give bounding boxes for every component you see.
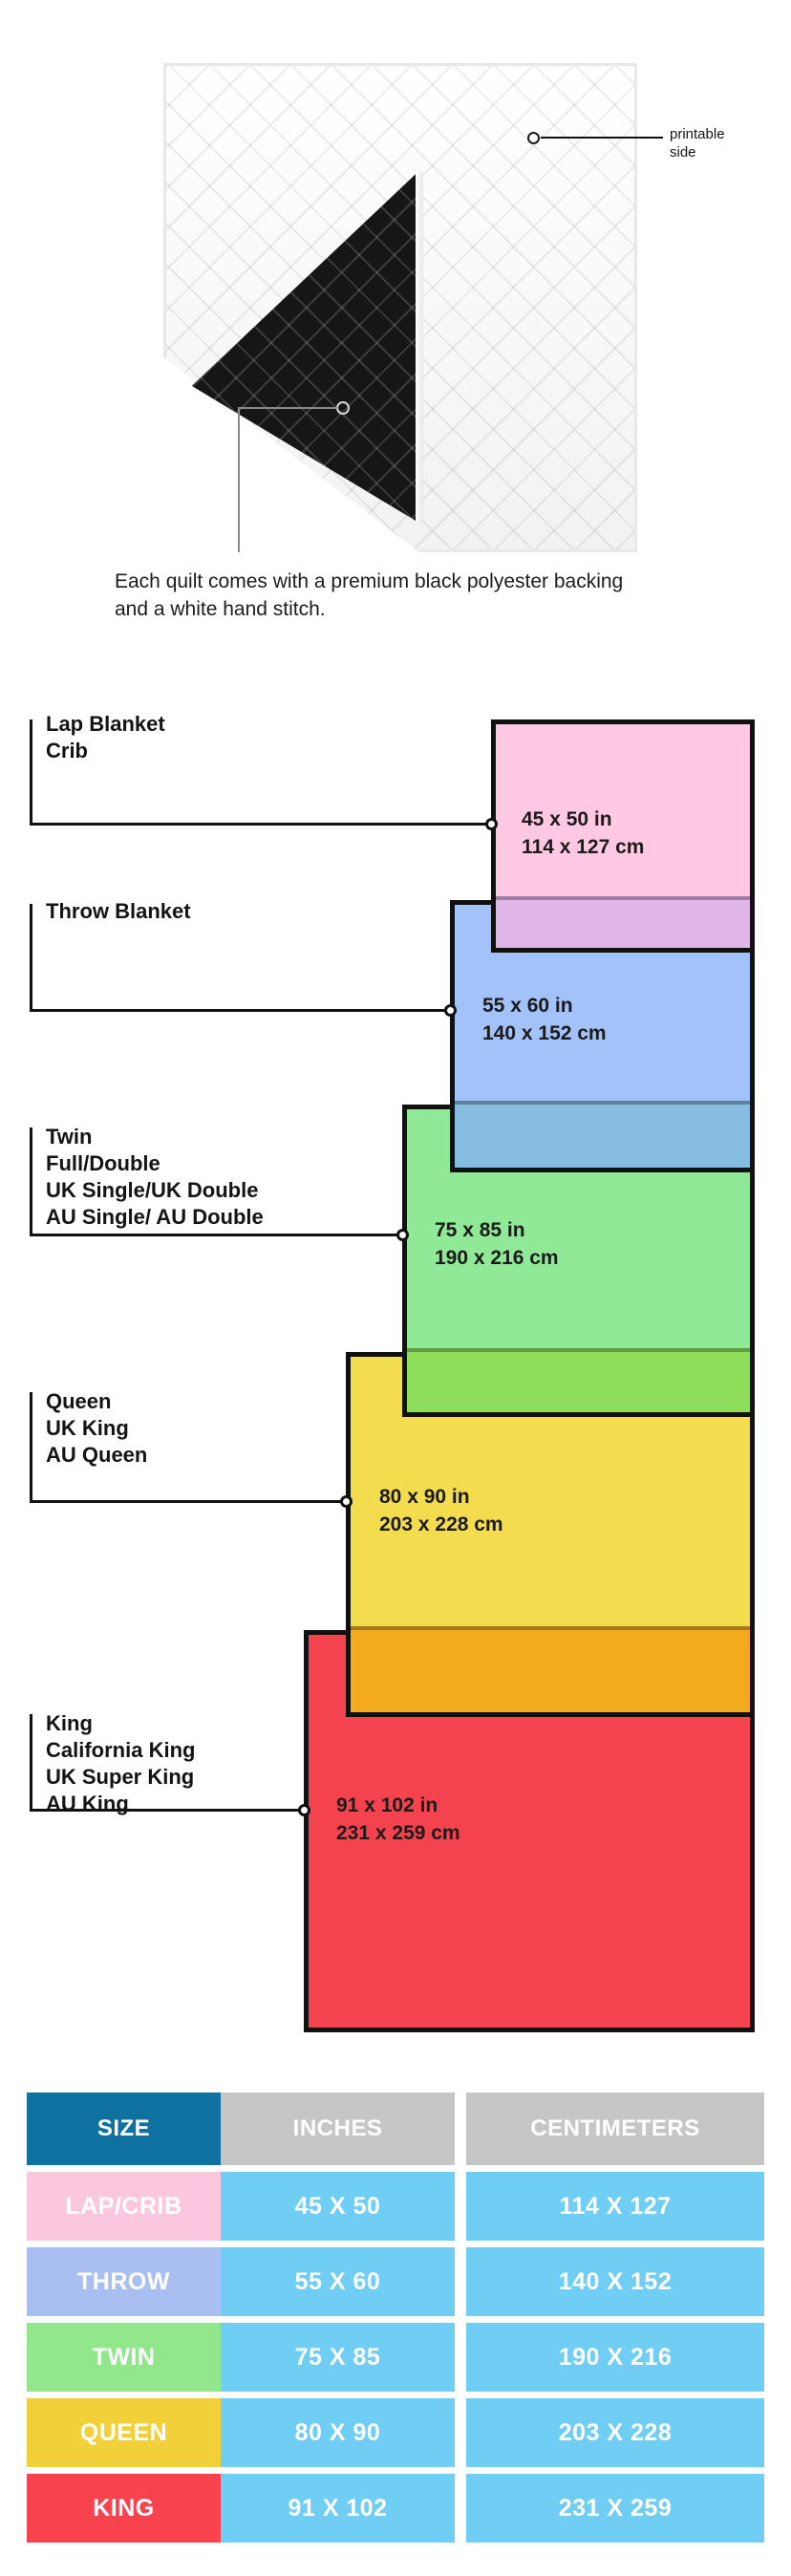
dimension-marker-icon bbox=[396, 1229, 409, 1241]
table-cell-inches: 55 X 60 bbox=[221, 2247, 455, 2316]
dimension-cm: 190 x 216 cm bbox=[435, 1244, 559, 1272]
dimension-inches: 45 x 50 in bbox=[522, 805, 644, 833]
overlap-band-queen-king bbox=[351, 1626, 750, 1712]
table-row-throw: THROW 55 X 60 140 X 152 bbox=[27, 2247, 764, 2316]
dimension-marker-icon bbox=[340, 1495, 353, 1508]
dimension-text-throw: 55 x 60 in 140 x 152 cm bbox=[482, 992, 607, 1047]
dimension-inches: 75 x 85 in bbox=[435, 1216, 559, 1244]
dimension-marker-icon bbox=[298, 1804, 310, 1816]
table-header-centimeters: CENTIMETERS bbox=[466, 2093, 764, 2165]
size-label-line: Crib bbox=[46, 738, 165, 764]
size-label-king: King California King UK Super King AU Ki… bbox=[46, 1710, 195, 1817]
table-cell-inches: 45 X 50 bbox=[221, 2172, 455, 2241]
size-label-line: Twin bbox=[46, 1124, 264, 1150]
dimension-cm: 140 x 152 cm bbox=[482, 1020, 607, 1047]
dimension-inches: 80 x 90 in bbox=[379, 1483, 503, 1511]
table-cell-label: THROW bbox=[27, 2247, 221, 2316]
size-label-line: UK Single/UK Double bbox=[46, 1177, 264, 1204]
callout-line bbox=[30, 1809, 300, 1812]
table-row-king: KING 91 X 102 231 X 259 bbox=[27, 2474, 764, 2543]
dimension-text-twin: 75 x 85 in 190 x 216 cm bbox=[435, 1216, 559, 1272]
backing-callout-line-vertical bbox=[238, 407, 240, 552]
printable-side-marker-icon bbox=[527, 132, 540, 144]
dimension-inches: 91 x 102 in bbox=[336, 1792, 460, 1819]
size-label-line: King bbox=[46, 1710, 195, 1737]
quilt-fold-crease bbox=[416, 171, 423, 524]
printable-side-callout-line bbox=[541, 137, 663, 139]
table-column-gap bbox=[455, 2172, 466, 2241]
size-label-line: UK Super King bbox=[46, 1764, 195, 1791]
size-label-throw: Throw Blanket bbox=[46, 898, 191, 925]
size-label-line: AU King bbox=[46, 1791, 195, 1817]
dimension-cm: 203 x 228 cm bbox=[379, 1511, 503, 1538]
dimension-text-lap-crib: 45 x 50 in 114 x 127 cm bbox=[522, 805, 644, 861]
overlap-band-throw-twin bbox=[455, 1101, 750, 1168]
dimension-cm: 114 x 127 cm bbox=[522, 833, 644, 861]
quilt-caption: Each quilt comes with a premium black po… bbox=[115, 568, 635, 623]
table-cell-cm: 190 X 216 bbox=[466, 2323, 764, 2392]
table-cell-label: QUEEN bbox=[27, 2398, 221, 2467]
size-label-line: AU Queen bbox=[46, 1442, 147, 1469]
dimension-text-queen: 80 x 90 in 203 x 228 cm bbox=[379, 1483, 503, 1538]
table-column-gap bbox=[455, 2247, 466, 2316]
callout-line bbox=[30, 904, 32, 1011]
size-label-line: UK King bbox=[46, 1415, 147, 1442]
callout-line bbox=[30, 1714, 32, 1812]
callout-line bbox=[30, 719, 32, 825]
table-row-lap-crib: LAP/CRIB 45 X 50 114 X 127 bbox=[27, 2172, 764, 2241]
size-label-queen: Queen UK King AU Queen bbox=[46, 1388, 147, 1469]
table-header-size: SIZE bbox=[27, 2093, 221, 2165]
dimension-marker-icon bbox=[444, 1004, 457, 1017]
table-row-queen: QUEEN 80 X 90 203 X 228 bbox=[27, 2398, 764, 2467]
callout-line bbox=[30, 1500, 342, 1503]
callout-line bbox=[30, 1234, 397, 1236]
size-label-line: California King bbox=[46, 1737, 195, 1764]
size-label-line: Lap Blanket bbox=[46, 711, 165, 738]
table-header-row: SIZE INCHES CENTIMETERS bbox=[27, 2093, 764, 2165]
dimension-cm: 231 x 259 cm bbox=[336, 1819, 460, 1847]
printable-side-label: printable side bbox=[670, 125, 746, 161]
table-column-gap bbox=[455, 2398, 466, 2467]
backing-callout-line-horizontal bbox=[238, 407, 337, 409]
callout-line bbox=[30, 823, 488, 826]
overlap-band-twin-queen bbox=[407, 1348, 750, 1412]
callout-line bbox=[30, 1392, 32, 1503]
table-cell-inches: 91 X 102 bbox=[221, 2474, 455, 2543]
dimension-text-king: 91 x 102 in 231 x 259 cm bbox=[336, 1792, 460, 1847]
table-header-inches: INCHES bbox=[221, 2093, 455, 2165]
table-cell-cm: 140 X 152 bbox=[466, 2247, 764, 2316]
size-guide-page: printable side Each quilt comes with a p… bbox=[0, 0, 791, 2576]
table-column-gap bbox=[455, 2093, 466, 2165]
spec-table: SIZE INCHES CENTIMETERS LAP/CRIB 45 X 50… bbox=[27, 2093, 764, 2549]
table-cell-cm: 203 X 228 bbox=[466, 2398, 764, 2467]
table-column-gap bbox=[455, 2474, 466, 2543]
table-cell-label: TWIN bbox=[27, 2323, 221, 2392]
table-cell-inches: 80 X 90 bbox=[221, 2398, 455, 2467]
table-row-twin: TWIN 75 X 85 190 X 216 bbox=[27, 2323, 764, 2392]
dimension-marker-icon bbox=[485, 818, 498, 830]
backing-marker-icon bbox=[336, 401, 350, 415]
table-cell-cm: 114 X 127 bbox=[466, 2172, 764, 2241]
size-label-line: Queen bbox=[46, 1388, 147, 1415]
table-column-gap bbox=[455, 2323, 466, 2392]
size-label-twin: Twin Full/Double UK Single/UK Double AU … bbox=[46, 1124, 264, 1231]
size-label-line: AU Single/ AU Double bbox=[46, 1204, 264, 1231]
table-cell-label: KING bbox=[27, 2474, 221, 2543]
table-cell-cm: 231 X 259 bbox=[466, 2474, 764, 2543]
dimension-inches: 55 x 60 in bbox=[482, 992, 607, 1020]
callout-line bbox=[30, 1009, 445, 1012]
callout-line bbox=[30, 1127, 32, 1236]
size-label-line: Throw Blanket bbox=[46, 898, 191, 925]
table-cell-label: LAP/CRIB bbox=[27, 2172, 221, 2241]
overlap-band-lap-throw bbox=[496, 896, 750, 948]
size-label-line: Full/Double bbox=[46, 1150, 264, 1177]
table-cell-inches: 75 X 85 bbox=[221, 2323, 455, 2392]
size-label-lap-crib: Lap Blanket Crib bbox=[46, 711, 165, 764]
